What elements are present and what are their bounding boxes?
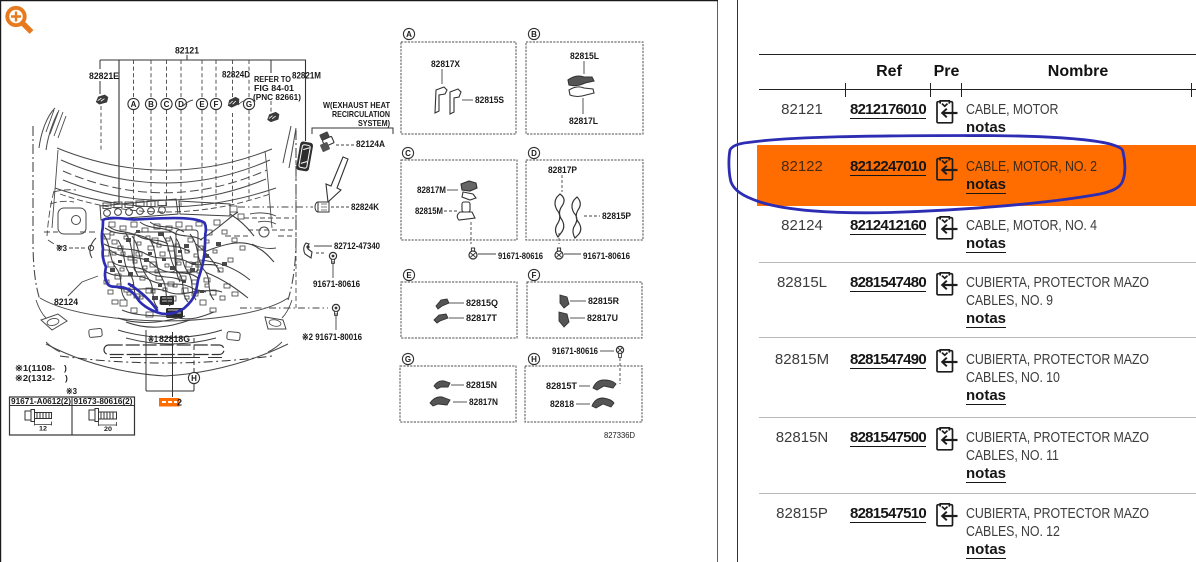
svg-text:20: 20 [104,426,112,433]
svg-text:): ) [64,363,67,373]
svg-text:H: H [191,374,197,383]
svg-text:C: C [164,100,170,109]
svg-text:82712-47340: 82712-47340 [334,241,380,252]
svg-text:A: A [131,100,137,109]
svg-text:91671-A0612(2): 91671-A0612(2) [11,397,71,406]
svg-text:82818G: 82818G [159,334,190,345]
svg-text:※2(1312-: ※2(1312- [15,373,55,383]
svg-text:REFER TO: REFER TO [254,75,291,84]
svg-text:82821M: 82821M [292,71,321,82]
svg-text:F: F [214,100,219,109]
svg-text:2: 2 [177,398,182,408]
svg-text:C: C [405,149,411,158]
svg-text:※2 91671-80016: ※2 91671-80016 [302,332,362,343]
svg-text:82815R: 82815R [588,296,619,307]
svg-text:H: H [531,355,537,364]
svg-text:82821E: 82821E [89,71,119,82]
svg-text:82818: 82818 [550,399,574,410]
svg-text:※1(1108-: ※1(1108- [15,363,55,373]
svg-text:G: G [246,100,252,109]
svg-text:A: A [406,30,412,39]
svg-text:91671-80616: 91671-80616 [552,346,598,357]
svg-text:D: D [178,100,184,109]
svg-text:82817U: 82817U [587,313,618,324]
svg-text:827336D: 827336D [604,430,635,440]
svg-text:82124: 82124 [54,297,79,308]
svg-text:91673-80616(2): 91673-80616(2) [74,397,133,406]
svg-text:12: 12 [39,426,47,433]
svg-text:91671-80616: 91671-80616 [583,251,630,262]
svg-text:91671-80616: 91671-80616 [498,251,543,262]
svg-text:E: E [406,271,412,280]
svg-text:91671-80616: 91671-80616 [313,279,360,290]
svg-text:82815Q: 82815Q [466,298,498,309]
svg-text:82817X: 82817X [431,59,461,70]
svg-text:82121: 82121 [175,46,200,57]
svg-text:82124A: 82124A [356,139,385,150]
svg-text:G: G [405,355,411,364]
svg-text:82817M: 82817M [417,185,446,196]
svg-text:82815T: 82815T [546,381,577,392]
svg-text:82817P: 82817P [548,165,578,176]
svg-text:B: B [148,100,154,109]
svg-text:82817L: 82817L [569,116,598,127]
svg-text:82815L: 82815L [570,51,599,62]
svg-text:82817N: 82817N [469,397,498,408]
svg-text:82815M: 82815M [415,206,443,217]
svg-text:(PNC 82661): (PNC 82661) [253,93,301,102]
svg-text:82815N: 82815N [466,380,497,391]
svg-text:82815P: 82815P [602,211,632,222]
svg-text:82815S: 82815S [475,95,504,106]
svg-text:82824K: 82824K [351,202,379,213]
svg-text:※1: ※1 [148,334,159,345]
svg-text:※3: ※3 [56,243,67,253]
svg-text:F: F [532,271,537,280]
svg-text:※3: ※3 [66,386,77,396]
svg-text:D: D [531,149,537,158]
svg-text:SYSTEM): SYSTEM) [358,118,390,128]
svg-text:FIG 84-01: FIG 84-01 [254,84,295,93]
svg-text:82817T: 82817T [466,313,497,324]
svg-text:82824D: 82824D [222,70,250,81]
svg-text:E: E [199,100,205,109]
svg-text:B: B [531,30,537,39]
svg-text:): ) [65,373,68,383]
